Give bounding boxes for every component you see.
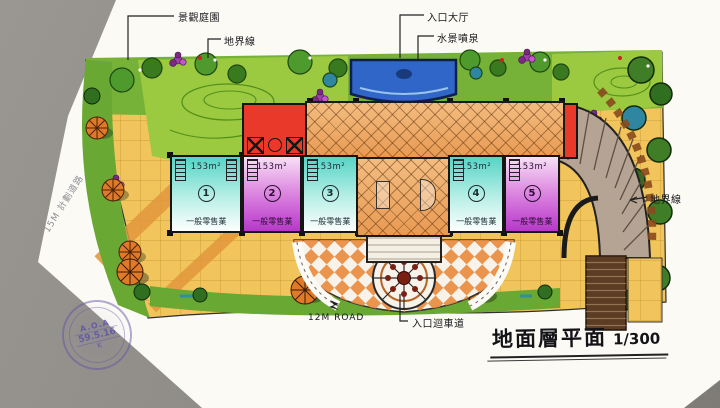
- retail-unit-5: 153m² 5 一般零售業: [504, 155, 560, 233]
- unit-area: 153m²: [461, 162, 491, 172]
- stair-icon: [509, 159, 520, 181]
- unit-number: 2: [264, 185, 281, 202]
- unit-number: 5: [524, 185, 541, 202]
- label-road-12m: 12M ROAD: [308, 313, 364, 323]
- stair-icon: [247, 159, 258, 181]
- label-landscape-garden: 景觀庭園: [178, 9, 220, 24]
- unit-area: 153m²: [517, 162, 547, 172]
- label-boundary-line-top: 地界線: [224, 33, 256, 48]
- site-plan-canvas: 153m² 1 一般零售業 153m² 2 一般零售業 153m² 3 一般零售…: [0, 0, 720, 408]
- stair-icon: [307, 159, 318, 181]
- hall-fixture: [420, 179, 436, 211]
- retail-unit-4: 153m² 4 一般零售業: [448, 155, 504, 233]
- stair-icon: [453, 159, 464, 181]
- unit-use: 一般零售業: [456, 215, 496, 226]
- entrance-arcade: [305, 101, 565, 159]
- service-core-left: [242, 103, 308, 159]
- sheet-title-text: 地面層平面: [492, 326, 607, 352]
- round-fixture-symbol: [268, 138, 282, 152]
- label-boundary-line-right: 地界線: [650, 191, 682, 206]
- label-entrance-driveway: 入口迴車道: [412, 315, 465, 330]
- unit-number: 1: [198, 185, 215, 202]
- retail-unit-1: 153m² 1 一般零售業: [170, 155, 242, 233]
- stair-icon: [175, 159, 186, 181]
- stair-icon: [226, 159, 237, 181]
- stair-x-symbol: [247, 137, 264, 154]
- hall-fixture: [376, 181, 390, 209]
- stair-x-symbol: [286, 137, 303, 154]
- water-feature-pool: [351, 60, 456, 102]
- unit-number: 3: [322, 185, 339, 202]
- sheet-title: 地面層平面1/300: [490, 320, 669, 358]
- unit-use: 一般零售業: [512, 215, 552, 226]
- unit-use: 一般零售業: [186, 215, 226, 226]
- unit-area: 153m²: [257, 162, 287, 172]
- label-entrance-hall: 入口大厅: [427, 9, 469, 24]
- unit-area: 153m²: [191, 162, 221, 172]
- unit-area: 153m²: [315, 162, 345, 172]
- label-water-feature: 水景噴泉: [437, 30, 479, 45]
- entrance-steps: [366, 237, 442, 263]
- stamp-inner-ring: [63, 301, 131, 369]
- sheet-scale: 1/300: [613, 330, 661, 349]
- unit-use: 一般零售業: [310, 215, 350, 226]
- unit-number: 4: [468, 185, 485, 202]
- entrance-hall: [356, 159, 452, 237]
- unit-use: 一般零售業: [252, 215, 292, 226]
- retail-unit-2: 153m² 2 一般零售業: [242, 155, 302, 233]
- retail-unit-3: 153m² 3 一般零售業: [302, 155, 358, 233]
